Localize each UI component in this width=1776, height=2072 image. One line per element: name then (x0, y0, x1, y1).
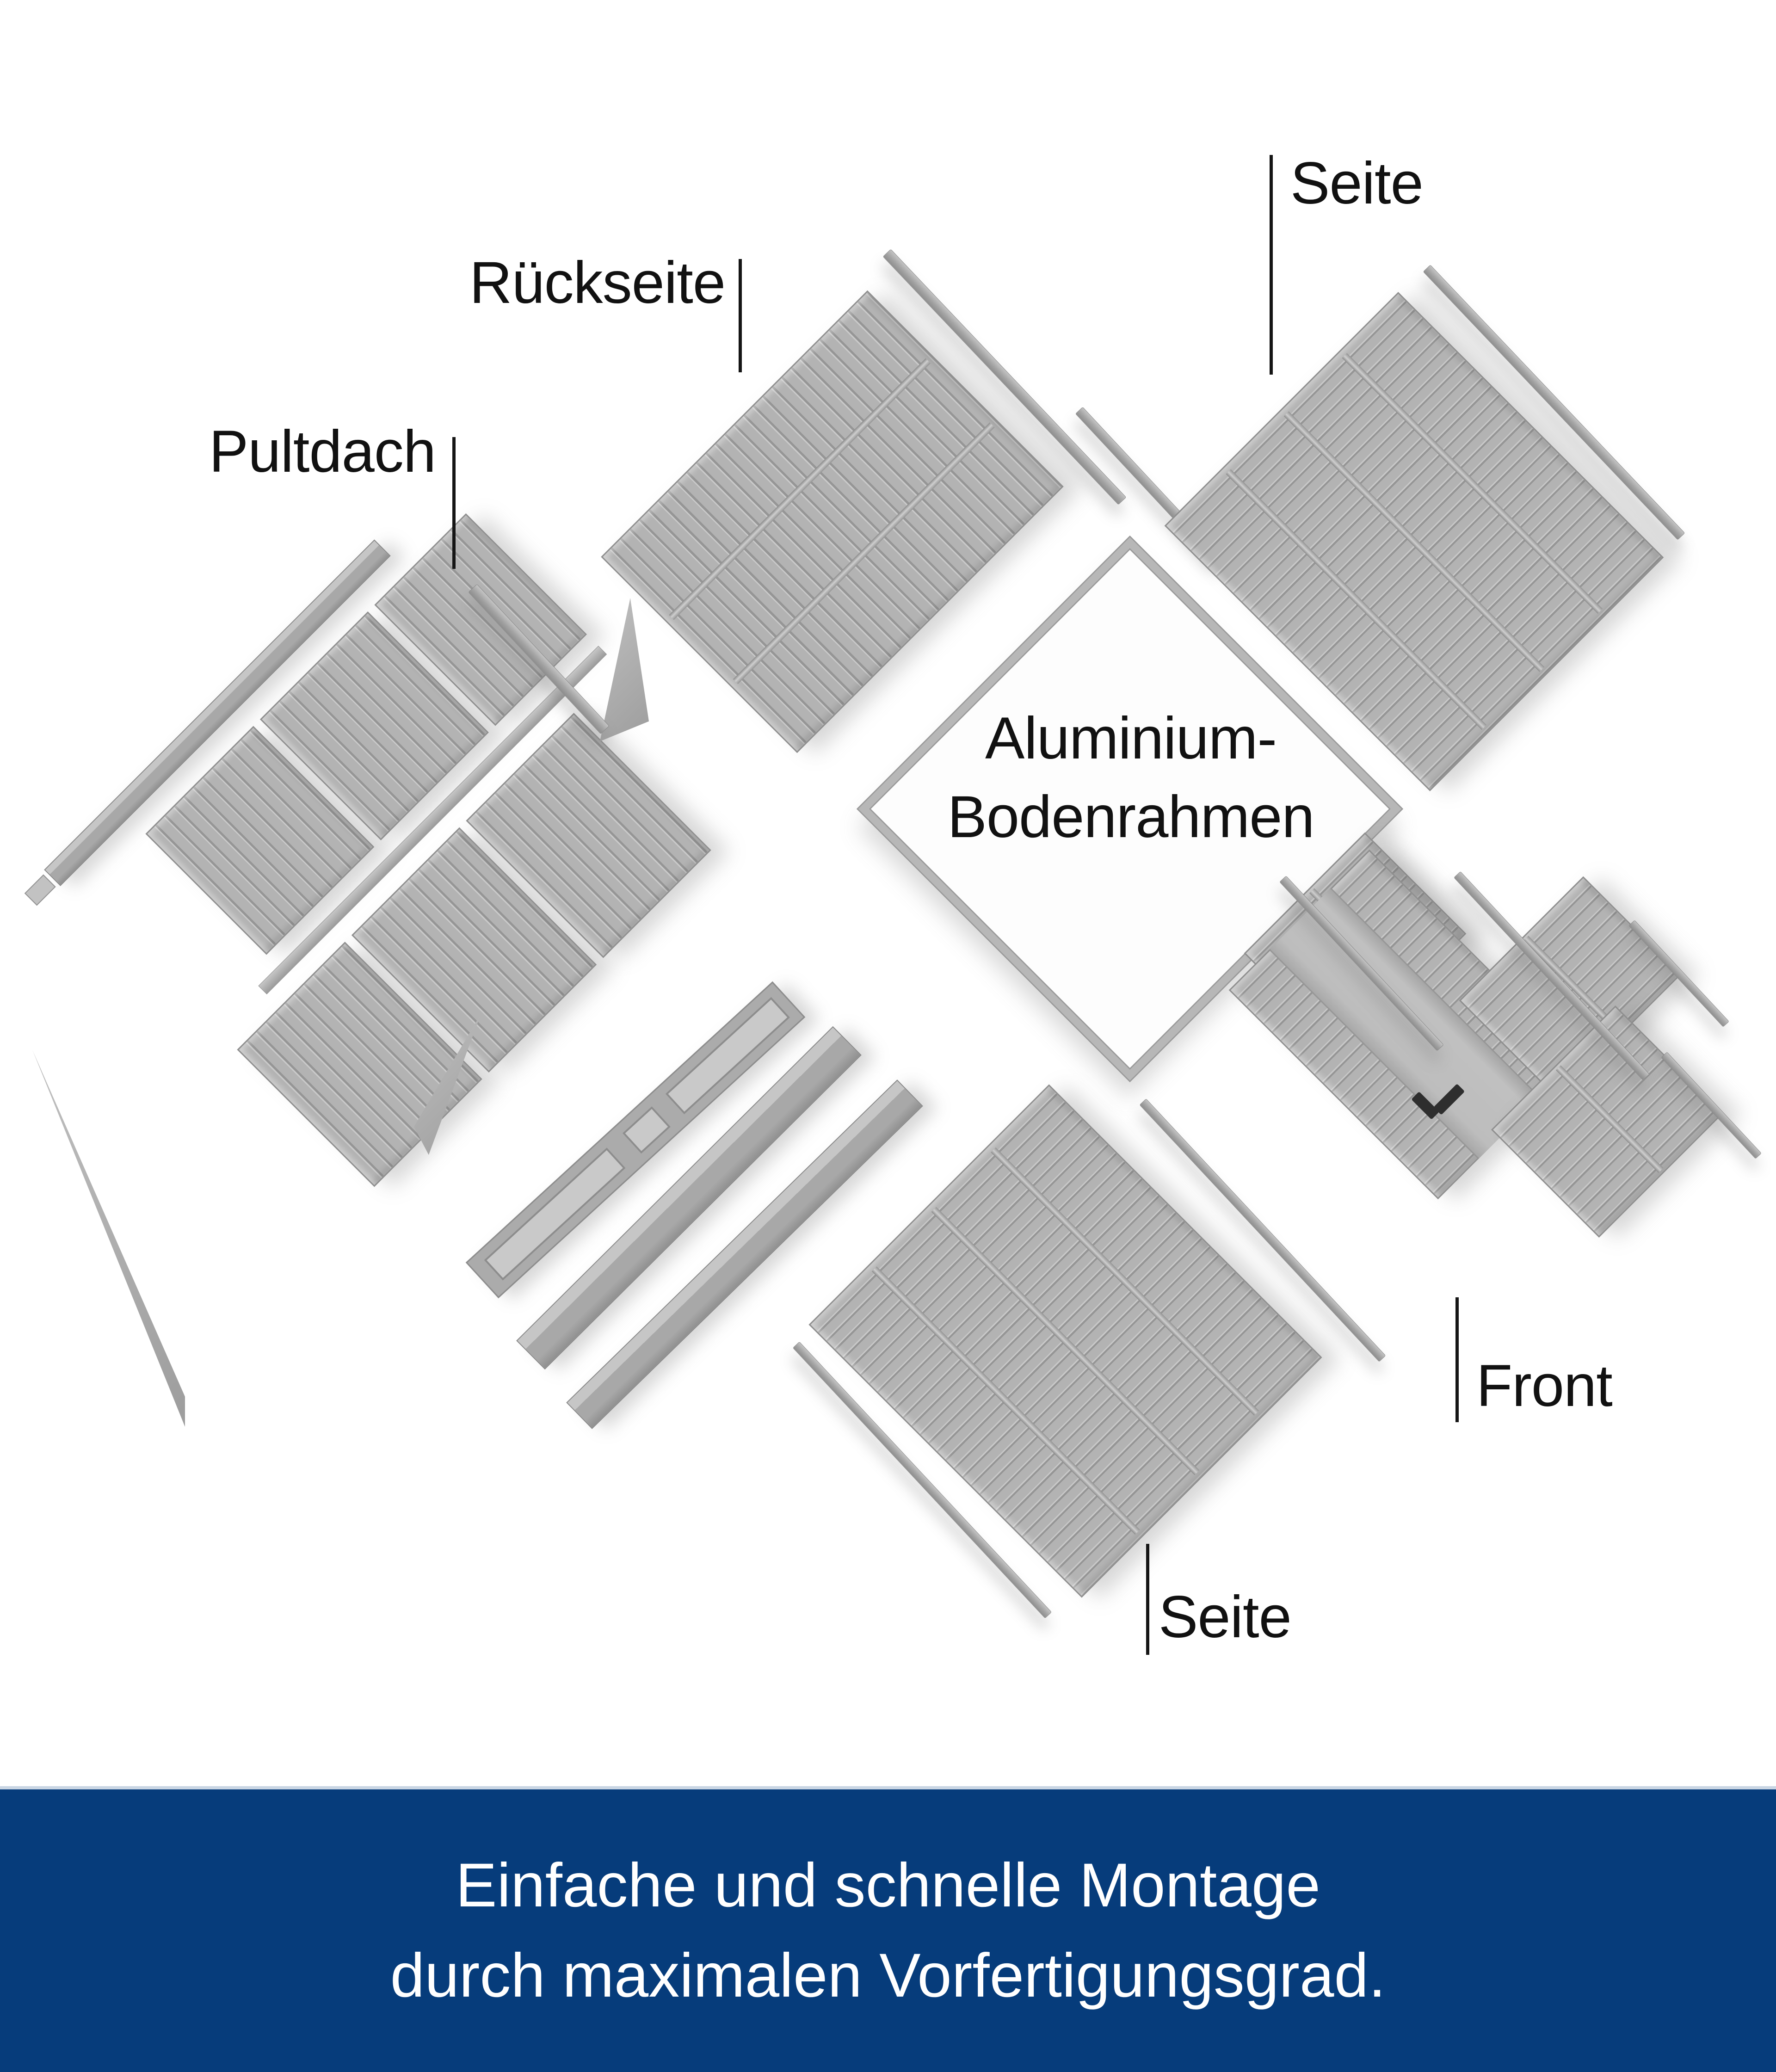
label-roof: Pultdach (209, 421, 436, 483)
panel-divider (1342, 353, 1602, 614)
label-front: Front (1476, 1355, 1612, 1417)
vent-strip-opening (623, 1106, 671, 1153)
leader-roof (452, 437, 456, 569)
panel-divider (1556, 1065, 1664, 1173)
panel-divider (1284, 411, 1544, 672)
gable-wedge (32, 1050, 185, 1427)
panel-divider (931, 1207, 1199, 1475)
exploded-shed-diagram: Aluminium- Bodenrahmen Rückseite Seite P… (0, 0, 1776, 1786)
leader-back (739, 259, 742, 372)
banner-caption: Einfache und schnelle Montage durch maxi… (390, 1841, 1386, 2021)
label-back: Rückseite (469, 252, 725, 314)
leader-side-top (1270, 155, 1273, 375)
label-floor-frame-line1: Aluminium- (895, 699, 1367, 778)
label-side-top: Seite (1290, 153, 1423, 215)
roof-beam-endcap (25, 875, 56, 906)
label-floor-frame: Aluminium- Bodenrahmen (895, 699, 1367, 857)
banner: Einfache und schnelle Montage durch maxi… (0, 1786, 1776, 2072)
panel-divider (733, 423, 995, 684)
panel-divider (872, 1267, 1140, 1535)
banner-caption-line2: durch maximalen Vorfertigungsgrad. (390, 1931, 1386, 2021)
label-floor-frame-line2: Bodenrahmen (895, 778, 1367, 857)
leader-front (1455, 1297, 1459, 1422)
banner-caption-line1: Einfache und schnelle Montage (390, 1841, 1386, 1930)
side-wall-panel-bottom (808, 1084, 1322, 1597)
leader-side-bottom (1146, 1544, 1149, 1655)
label-side-bottom: Seite (1159, 1586, 1291, 1648)
panel-divider (669, 358, 931, 620)
